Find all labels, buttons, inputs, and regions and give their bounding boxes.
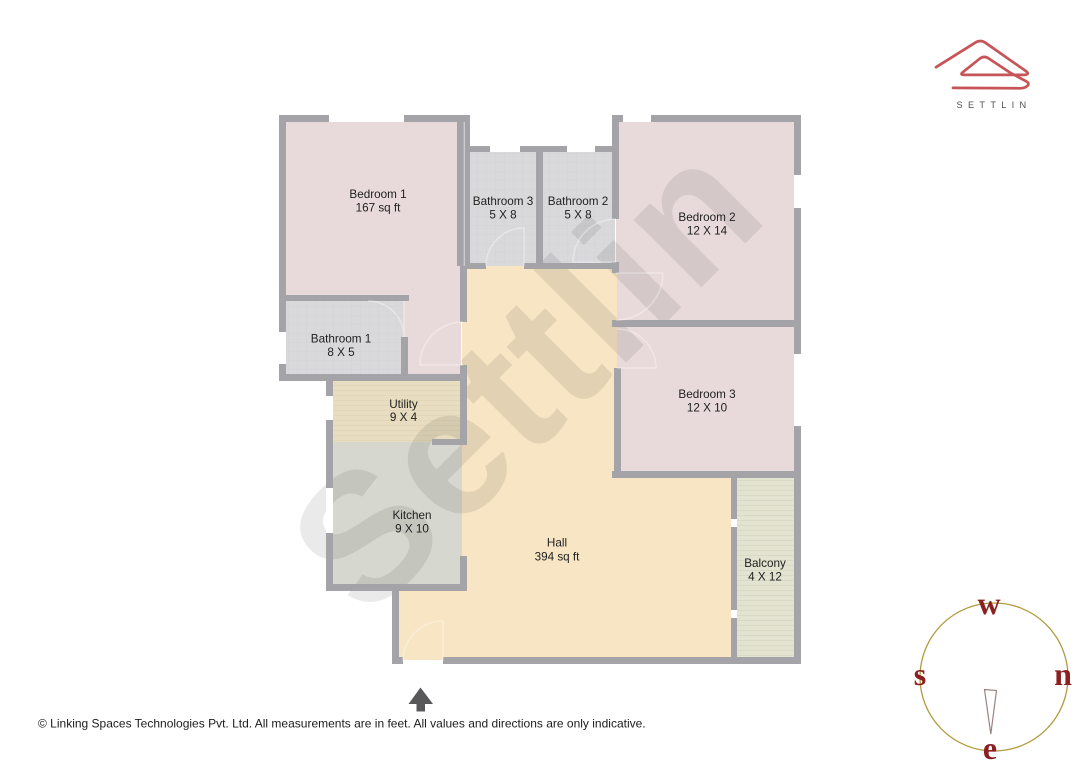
svg-text:Kitchen: Kitchen [393, 509, 432, 522]
svg-text:Hall: Hall [547, 537, 567, 550]
svg-text:5 X 8: 5 X 8 [489, 209, 516, 222]
svg-text:12 X 10: 12 X 10 [687, 402, 728, 415]
svg-text:394 sq ft: 394 sq ft [535, 551, 581, 564]
svg-text:n: n [1054, 656, 1072, 692]
svg-text:9 X 4: 9 X 4 [390, 411, 418, 424]
svg-text:Bedroom 3: Bedroom 3 [678, 388, 735, 401]
svg-text:8 X 5: 8 X 5 [327, 346, 355, 359]
svg-text:e: e [983, 730, 997, 764]
svg-text:Bathroom 3: Bathroom 3 [473, 195, 533, 208]
svg-text:s: s [914, 656, 926, 692]
svg-text:© Linking Spaces Technologies: © Linking Spaces Technologies Pvt. Ltd. … [38, 717, 646, 731]
svg-text:Balcony: Balcony [744, 557, 786, 570]
svg-text:12 X 14: 12 X 14 [687, 225, 728, 238]
svg-text:167 sq ft: 167 sq ft [356, 202, 402, 215]
svg-text:SETTLIN: SETTLIN [957, 100, 1032, 110]
svg-text:9 X 10: 9 X 10 [395, 523, 429, 536]
svg-text:Bathroom 2: Bathroom 2 [548, 195, 608, 208]
svg-text:Bedroom 2: Bedroom 2 [678, 211, 735, 224]
svg-text:w: w [977, 585, 1000, 621]
svg-text:Bedroom 1: Bedroom 1 [349, 188, 406, 201]
svg-text:4 X 12: 4 X 12 [748, 571, 782, 584]
svg-text:5 X 8: 5 X 8 [564, 209, 591, 222]
svg-text:Bathroom 1: Bathroom 1 [311, 333, 371, 346]
svg-text:Utility: Utility [389, 398, 418, 411]
